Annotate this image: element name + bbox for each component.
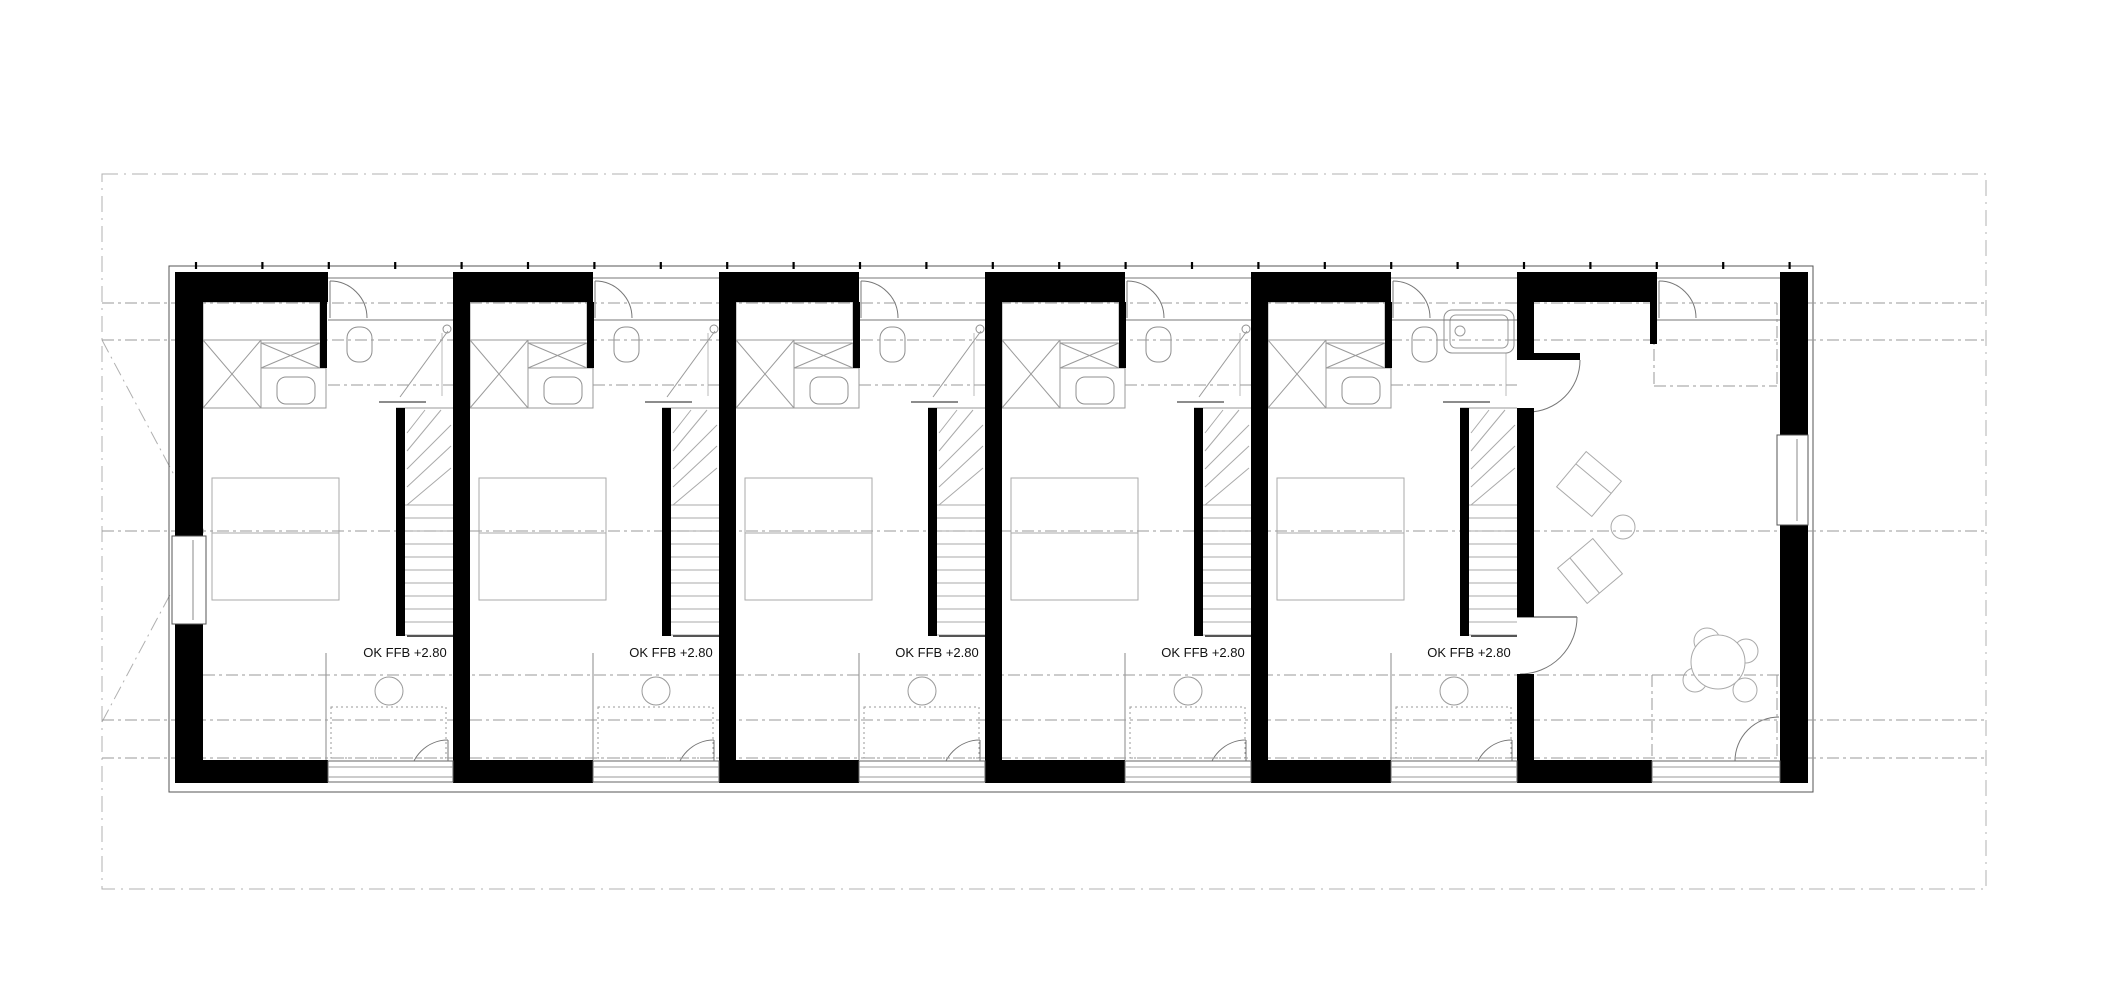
- living-area: [1517, 278, 1780, 761]
- hall-door-arc: [1528, 360, 1580, 412]
- facade-module-tick: [1324, 262, 1326, 269]
- exterior-wall-right: [1780, 525, 1808, 783]
- stair-winder: [1205, 468, 1249, 505]
- window-south: [328, 761, 453, 782]
- stair-winder: [1205, 425, 1249, 469]
- bed: [1011, 478, 1138, 600]
- toilet: [1342, 377, 1380, 404]
- party-wall: [1251, 272, 1268, 783]
- facade-module-tick: [1058, 262, 1060, 269]
- lower-washbasin: [1174, 677, 1202, 705]
- exterior-wall-bottom: [453, 760, 593, 783]
- stair-winder: [673, 446, 717, 487]
- entry-door-arc: [861, 281, 898, 318]
- bath-wall-leg: [320, 302, 327, 368]
- facade-module-tick: [1523, 262, 1525, 269]
- party-wall: [453, 272, 470, 783]
- facade-module-tick: [1789, 262, 1791, 269]
- stair-winder: [673, 410, 707, 451]
- stair-wall: [1194, 408, 1203, 636]
- facade-module-tick: [1722, 262, 1724, 269]
- stair-winder: [407, 410, 425, 433]
- unit-1: [203, 278, 453, 778]
- window-left-gable: [172, 536, 206, 624]
- exterior-wall-top: [985, 272, 1125, 302]
- vanity-counter: [1396, 707, 1511, 758]
- floor-level-labels: OK FFB +2.80OK FFB +2.80OK FFB +2.80OK F…: [363, 645, 1510, 660]
- facade-module-tick: [527, 262, 529, 269]
- bath-wall-leg: [1119, 302, 1126, 368]
- exterior-wall-bottom: [719, 760, 859, 783]
- bathtub: [1444, 310, 1514, 353]
- facade-module-tick: [328, 262, 330, 269]
- window-south: [593, 761, 719, 782]
- facade-module-tick: [261, 262, 263, 269]
- vanity-counter: [864, 707, 979, 758]
- drawing-canvas: OK FFB +2.80OK FFB +2.80OK FFB +2.80OK F…: [0, 0, 2122, 998]
- exterior-wall-top: [1251, 272, 1391, 302]
- side-table: [1611, 515, 1635, 539]
- stair-winder: [1205, 410, 1223, 433]
- facade-module-tick: [1191, 262, 1193, 269]
- wardrobe: [470, 302, 587, 340]
- armchair-body: [1558, 539, 1623, 604]
- stair-winder: [1205, 410, 1239, 451]
- window-south: [859, 761, 985, 782]
- stair-winder: [1471, 446, 1515, 487]
- floor-level-label: OK FFB +2.80: [1427, 645, 1510, 660]
- exterior-wall-left: [175, 272, 203, 536]
- stair-winder: [1471, 410, 1505, 451]
- facade-module-tick: [925, 262, 927, 269]
- facade-module-tick: [859, 262, 861, 269]
- facade-module-tick: [992, 262, 994, 269]
- party-wall: [719, 272, 736, 783]
- bath-wall-leg: [853, 302, 860, 368]
- terrace-door-arc: [1735, 717, 1779, 761]
- wardrobe: [1268, 302, 1385, 340]
- exterior-wall-top: [453, 272, 593, 302]
- bath-wall-leg: [1385, 302, 1392, 368]
- floor-level-label: OK FFB +2.80: [1161, 645, 1244, 660]
- stair-winder: [939, 425, 983, 469]
- vanity-counter: [331, 707, 446, 758]
- stair-wall: [1460, 408, 1469, 636]
- stair-winder: [407, 410, 441, 451]
- stair-winder: [1471, 410, 1489, 433]
- facade-module-tick: [1656, 262, 1658, 269]
- exterior-wall-top: [1517, 272, 1657, 302]
- armchair: [1558, 539, 1623, 604]
- living-door-arc: [1520, 617, 1577, 674]
- stair-winder: [407, 425, 451, 469]
- facade-module-tick: [1457, 262, 1459, 269]
- toilet: [544, 377, 582, 404]
- stair-winder: [1471, 425, 1515, 469]
- facade-module-tick: [593, 262, 595, 269]
- exterior-wall-right: [1780, 272, 1808, 435]
- stair-winder: [939, 446, 983, 487]
- facade-module-tick: [461, 262, 463, 269]
- washbasin: [1412, 327, 1437, 362]
- washbasin: [1146, 327, 1171, 362]
- washbasin: [347, 327, 372, 362]
- stair-wall: [396, 408, 405, 636]
- bath-wall-leg: [1650, 302, 1657, 344]
- exterior-wall-top: [719, 272, 859, 302]
- stair-winder: [939, 410, 957, 433]
- armchair-body: [1557, 452, 1622, 517]
- toilet: [1076, 377, 1114, 404]
- dining-table: [1691, 635, 1745, 689]
- exterior-wall-left: [175, 624, 203, 783]
- bed: [212, 478, 339, 600]
- stair-winder: [939, 410, 973, 451]
- stair-winder: [407, 468, 451, 505]
- entry-door-arc: [1127, 281, 1164, 318]
- vanity-counter: [1130, 707, 1245, 758]
- washbasin: [880, 327, 905, 362]
- hall-wall-stub: [1517, 353, 1580, 360]
- facade-module-tick: [195, 262, 197, 269]
- facade-module-tick: [1125, 262, 1127, 269]
- toilet: [277, 377, 315, 404]
- floor-level-label: OK FFB +2.80: [895, 645, 978, 660]
- armchair: [1557, 452, 1622, 517]
- lower-washbasin: [375, 677, 403, 705]
- facade-module-tick: [394, 262, 396, 269]
- stair-winder: [673, 425, 717, 469]
- wardrobe: [1002, 302, 1119, 340]
- window-south: [1391, 761, 1517, 782]
- toilet: [810, 377, 848, 404]
- exterior-wall-bottom: [1251, 760, 1391, 783]
- party-wall: [1517, 272, 1534, 353]
- entry-door-arc: [330, 281, 367, 318]
- facade-module-tick: [1589, 262, 1591, 269]
- unit-5: [1268, 278, 1517, 778]
- floor-level-label: OK FFB +2.80: [363, 645, 446, 660]
- facade-module-tick: [1257, 262, 1259, 269]
- unit-3: [736, 278, 985, 778]
- unit-4: [1002, 278, 1251, 778]
- exterior-wall-bottom: [1517, 760, 1652, 783]
- stair-winder: [673, 410, 691, 433]
- window-right-gable: [1777, 435, 1808, 525]
- entry-door-arc: [595, 281, 632, 318]
- bed: [479, 478, 606, 600]
- stair-wall: [928, 408, 937, 636]
- facade-module-tick: [726, 262, 728, 269]
- walls: [175, 272, 1808, 783]
- vanity-counter: [598, 707, 713, 758]
- stair-winder: [939, 468, 983, 505]
- window-south: [1125, 761, 1251, 782]
- bed: [745, 478, 872, 600]
- stair-winder: [673, 468, 717, 505]
- party-wall: [985, 272, 1002, 783]
- stair-winder: [407, 446, 451, 487]
- entry-door-arc: [1393, 281, 1430, 318]
- party-wall: [1517, 674, 1534, 783]
- wardrobe: [736, 302, 853, 340]
- party-wall: [1517, 408, 1534, 617]
- stair-winder: [1205, 446, 1249, 487]
- exterior-wall-bottom: [985, 760, 1125, 783]
- stair-winder: [1471, 468, 1515, 505]
- facade-module-tick: [660, 262, 662, 269]
- shower-diagonal: [400, 331, 448, 397]
- window-south: [1652, 761, 1780, 782]
- entry-door-arc: [1659, 281, 1696, 318]
- lower-washbasin: [1440, 677, 1468, 705]
- washbasin: [614, 327, 639, 362]
- bath-wall-leg: [587, 302, 594, 368]
- floor-level-label: OK FFB +2.80: [629, 645, 712, 660]
- stair-wall: [662, 408, 671, 636]
- facade-module-tick: [793, 262, 795, 269]
- lower-washbasin: [908, 677, 936, 705]
- floor-plan: OK FFB +2.80OK FFB +2.80OK FFB +2.80OK F…: [0, 0, 2122, 998]
- lower-washbasin: [642, 677, 670, 705]
- wardrobe: [203, 302, 320, 340]
- unit-2: [470, 278, 719, 778]
- facade-module-tick: [1390, 262, 1392, 269]
- bed: [1277, 478, 1404, 600]
